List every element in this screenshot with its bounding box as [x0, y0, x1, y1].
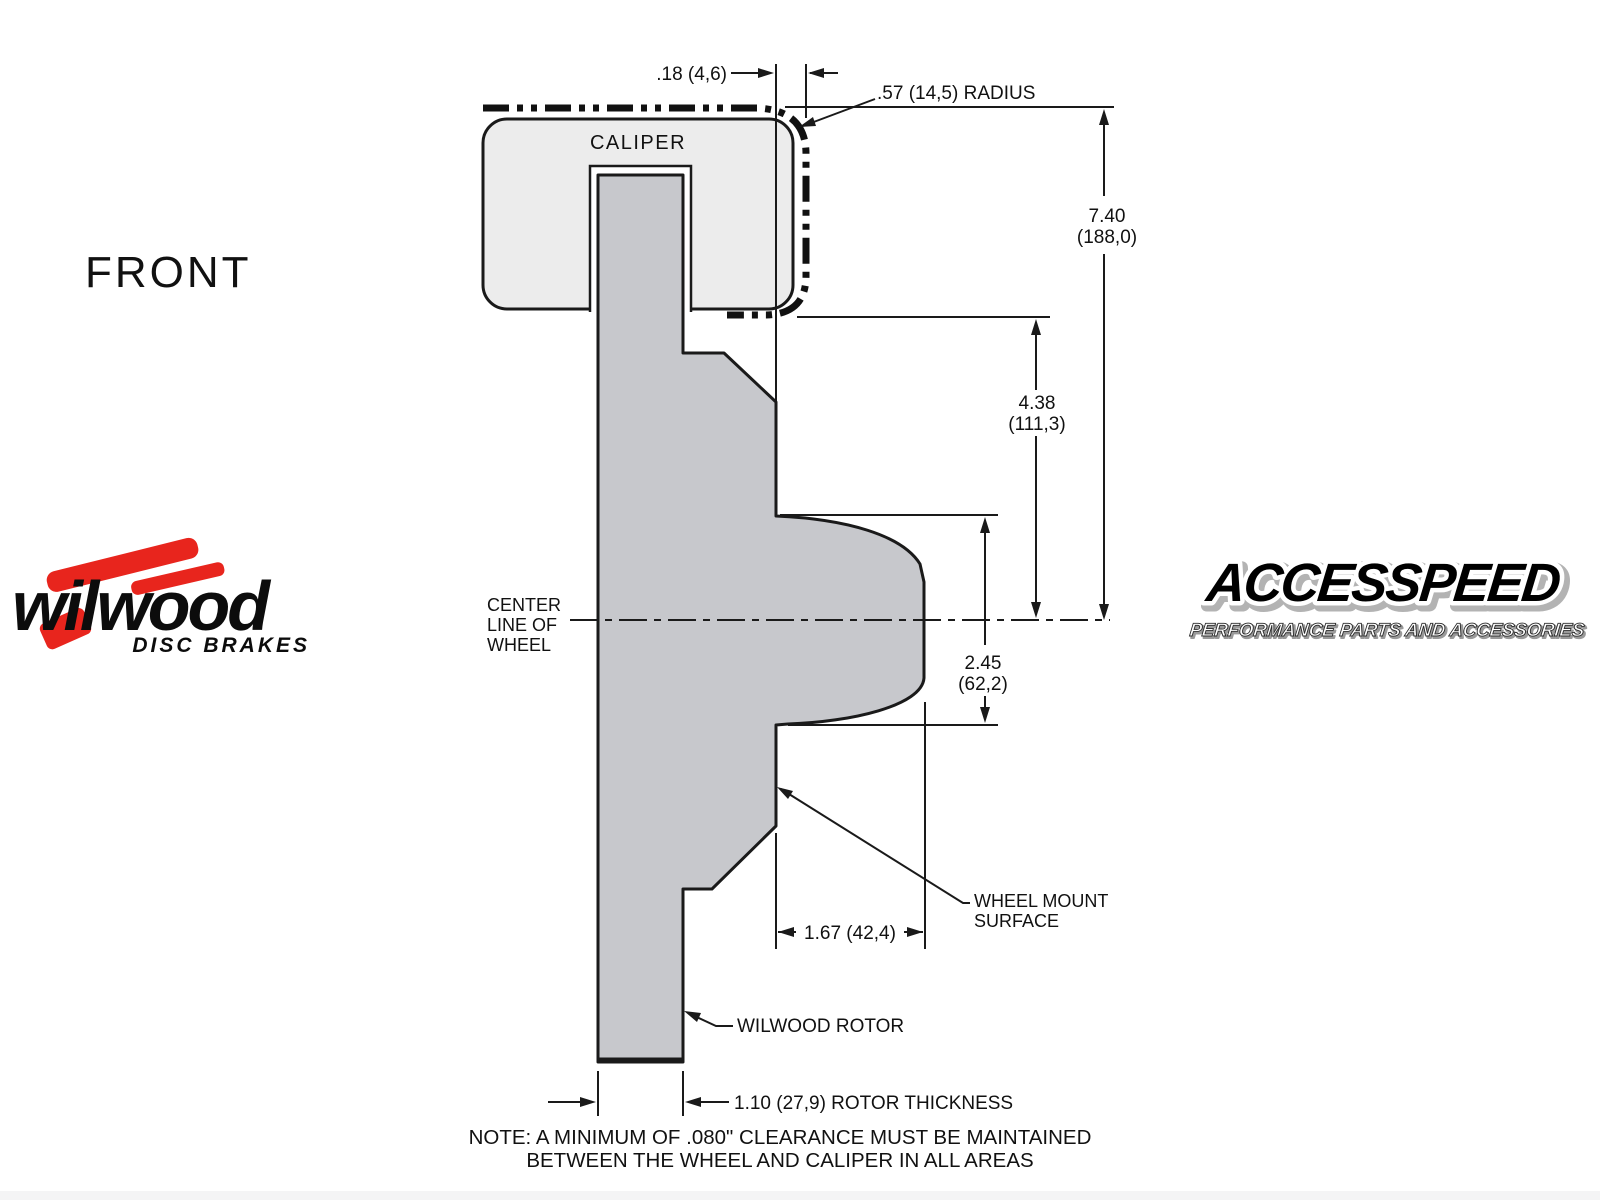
arrow-down-icon: [1099, 604, 1109, 620]
arrow-right-icon: [907, 927, 923, 937]
dim-hub-in: 2.45: [965, 653, 1002, 674]
arrow-left-icon: [808, 68, 824, 78]
accesspeed-logo: ACCESSPEED ACCESSPEED ACCESSPEED PERFORM…: [1188, 553, 1595, 642]
bottom-band: [0, 1191, 1600, 1200]
dim-hub-depth-label: 1.67 (42,4): [804, 923, 896, 944]
arrow-leader-icon: [684, 1011, 701, 1022]
arrow-right-icon: [580, 1097, 596, 1107]
arrow-up-icon: [1099, 109, 1109, 125]
arrow-leader-icon: [799, 117, 816, 127]
arrow-up-icon: [1031, 319, 1041, 335]
centerline-label-3: WHEEL: [487, 635, 551, 655]
arrow-right-icon: [758, 68, 774, 78]
note-line-2: BETWEEN THE WHEEL AND CALIPER IN ALL ARE…: [526, 1149, 1033, 1172]
wilwood-tagline: DISC BRAKES: [132, 634, 310, 657]
wheel-mount-label-2: SURFACE: [974, 911, 1059, 931]
rotor-callout-label: WILWOOD ROTOR: [737, 1016, 904, 1037]
dim-gap-label: .18 (4,6): [656, 64, 727, 85]
centerline-label-1: CENTER: [487, 595, 561, 615]
arrow-left-icon: [685, 1097, 701, 1107]
wheel-mount-label-1: WHEEL MOUNT: [974, 891, 1108, 911]
dim-radius-label: .57 (14,5) RADIUS: [877, 83, 1035, 104]
arrow-up-icon: [980, 517, 990, 533]
dim-overall-mm: (188,0): [1077, 227, 1137, 248]
dim-hub-mm: (62,2): [958, 674, 1008, 695]
caliper-label: CALIPER: [590, 132, 686, 154]
arrow-down-icon: [980, 707, 990, 723]
arrow-leader-icon: [777, 787, 793, 799]
brake-cross-section-diagram: FRONT CALIP: [0, 0, 1600, 1200]
arrow-down-icon: [1031, 602, 1041, 618]
arrow-left-icon: [778, 927, 794, 937]
accesspeed-wordmark: ACCESSPEED: [1202, 553, 1563, 613]
dim-thickness-label: 1.10 (27,9) ROTOR THICKNESS: [734, 1093, 1013, 1114]
dim-overall-in: 7.40: [1089, 206, 1126, 227]
technical-drawing-page: FRONT CALIP: [0, 0, 1600, 1200]
wilwood-logo: wilwood DISC BRAKES: [12, 536, 310, 657]
dim-caliper-center-in: 4.38: [1019, 393, 1056, 414]
note-line-1: NOTE: A MINIMUM OF .080" CLEARANCE MUST …: [469, 1126, 1092, 1149]
centerline-label-2: LINE OF: [487, 615, 557, 635]
view-label: FRONT: [85, 248, 252, 297]
wheel-mount-leader: [781, 789, 970, 903]
dim-caliper-center-mm: (111,3): [1008, 414, 1065, 435]
accesspeed-tagline: PERFORMANCE PARTS AND ACCESSORIES: [1189, 619, 1586, 640]
